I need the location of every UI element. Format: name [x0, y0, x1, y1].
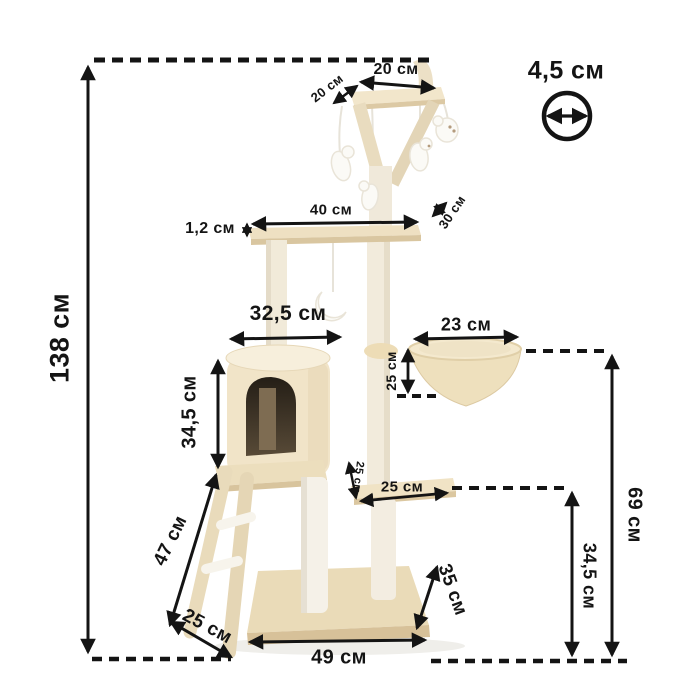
- dimension-diagram: 138 см 20 см 20 см 4,5 см 40 см 1,2 см 3…: [0, 0, 700, 700]
- dim-house-width-label: 32,5 см: [250, 302, 327, 326]
- dim-basket-depth-label: 25 см: [383, 351, 399, 391]
- dim-basket-width-label: 23 см: [441, 315, 491, 336]
- dim-post-diameter-label: 4,5 см: [528, 57, 605, 86]
- dim-base-width-label: 49 см: [311, 647, 367, 670]
- dim-total-height-label: 138 см: [45, 293, 76, 383]
- dim-lower-platform-width-label: 25 см: [381, 479, 423, 496]
- dim-house-height-label: 34,5 см: [179, 375, 202, 448]
- dim-board-thickness-label: 1,2 см: [185, 220, 235, 238]
- circle-diameter-icon: [544, 93, 590, 139]
- dim-upper-platform-width-label: 40 см: [310, 202, 352, 219]
- dim-top-platform-width-label: 20 см: [374, 61, 419, 79]
- dim-lower-platform-height-label: 34,5 см: [579, 543, 600, 609]
- dim-basket-height-label: 69 см: [623, 487, 646, 543]
- reference-dashes: [92, 60, 627, 661]
